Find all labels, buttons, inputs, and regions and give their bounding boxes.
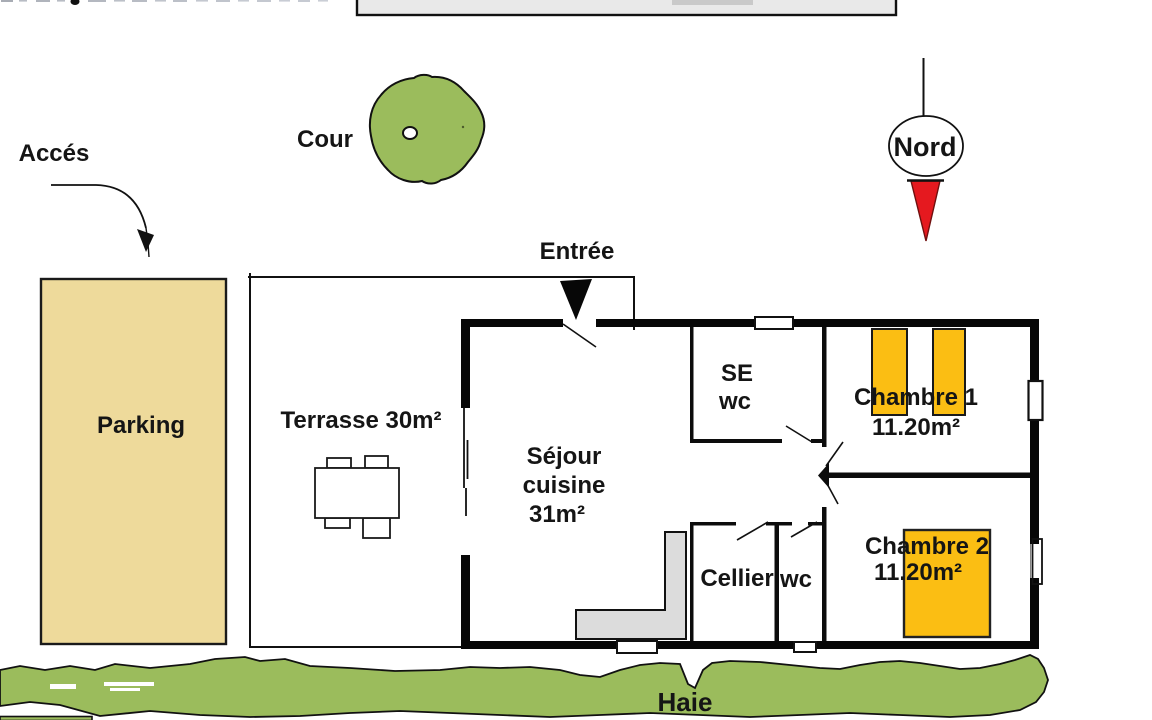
svg-text:Cellier: Cellier	[700, 565, 773, 592]
svg-text:Chambre 2: Chambre 2	[865, 533, 989, 560]
svg-text:Accés: Accés	[19, 140, 90, 167]
svg-text:Parking: Parking	[97, 412, 185, 439]
svg-text:Chambre 1: Chambre 1	[854, 384, 978, 411]
svg-text:11.20m²: 11.20m²	[872, 414, 960, 441]
svg-text:Cour: Cour	[297, 126, 353, 153]
svg-text:wc: wc	[718, 388, 751, 415]
svg-text:SE: SE	[721, 360, 753, 387]
svg-text:Séjour: Séjour	[527, 443, 602, 470]
svg-text:11.20m²: 11.20m²	[874, 559, 962, 586]
svg-text:31m²: 31m²	[529, 501, 585, 528]
svg-text:Terrasse 30m²: Terrasse 30m²	[281, 407, 442, 434]
svg-text:Nord: Nord	[894, 132, 957, 162]
svg-text:Haie: Haie	[658, 687, 713, 717]
svg-text:cuisine: cuisine	[523, 472, 606, 499]
svg-text:Entrée: Entrée	[540, 238, 615, 265]
svg-text:wc: wc	[779, 566, 812, 593]
